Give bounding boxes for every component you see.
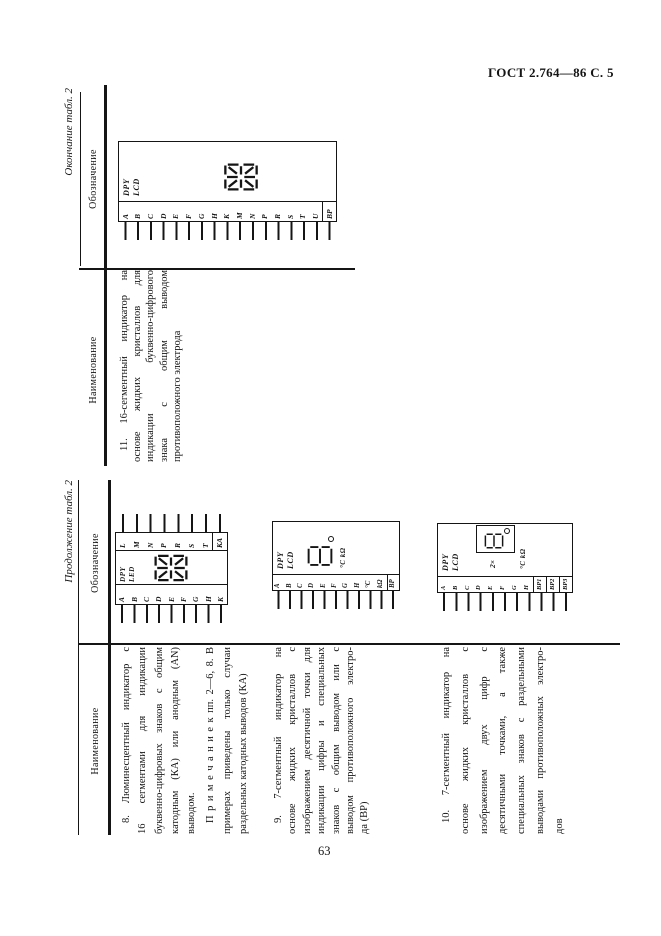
pin-strip: A B C D E F G H BP1 BP2 BP3 xyxy=(438,576,572,592)
pin-label: M xyxy=(233,202,246,221)
special-signs-label: °C kΩ xyxy=(339,548,347,568)
backplane-pin-label: BP3 xyxy=(559,577,572,592)
text-line: 9. 7-сегментный индикатор на xyxy=(272,647,286,834)
pin-label: C xyxy=(296,575,307,590)
diagram-16seg-lcd: A B C D E F G H K M N P R S T U BP DPYL xyxy=(118,141,337,222)
page-number: 63 xyxy=(318,844,331,859)
text-line: раздельных катодных выводов (КА) xyxy=(236,647,252,834)
pin-label: B xyxy=(128,585,140,604)
pin-label: G xyxy=(190,585,202,604)
pin-label: E xyxy=(318,575,329,590)
column-separator xyxy=(78,643,620,645)
backplane-pin-label: BP xyxy=(322,202,336,221)
pin-label: E xyxy=(170,202,183,221)
pin-label: A xyxy=(116,585,128,604)
pin-label: E xyxy=(165,585,177,604)
pin-strip: A B C D E F G H K xyxy=(116,584,227,604)
item-10-description: 10. 7-сегментный индикатор на основе жид… xyxy=(438,647,570,834)
header-underline xyxy=(108,480,111,835)
pin-label: A xyxy=(438,577,450,592)
pin-label: D xyxy=(474,577,486,592)
common-anode-pin-label: КА xyxy=(212,533,227,550)
pin-label: S xyxy=(284,202,297,221)
display-body: DPYLCD °C kΩ xyxy=(273,522,399,574)
table-continuation-title: Окончание табл. 2 xyxy=(63,88,75,176)
text-line: выводом противоположного электро- xyxy=(344,647,358,834)
display-body: DPYLED xyxy=(116,551,227,584)
pin-strip: L M N P R S T КА xyxy=(116,533,227,551)
text-line: знака с общим выводом xyxy=(158,270,171,462)
pin-stubs xyxy=(119,222,336,240)
pin-label: D xyxy=(307,575,318,590)
display-type-label: DPYLCD xyxy=(441,553,461,571)
pin-label: H xyxy=(208,202,221,221)
column-header-symbol: Обозначение xyxy=(88,95,99,263)
decimal-point-icon xyxy=(328,536,334,542)
pin-label: N xyxy=(246,202,259,221)
pin-label: T xyxy=(297,202,310,221)
pin-label: S xyxy=(185,533,199,550)
text-line: примерах приведены только случаи xyxy=(220,647,236,834)
text-line: выводами противоположных электро- xyxy=(532,647,551,834)
seg16-display-icon xyxy=(154,553,188,583)
pin-label: L xyxy=(116,533,130,550)
item-9-description: 9. 7-сегментный индикатор на основе жидк… xyxy=(272,647,373,834)
display-type-label: DPYLCD xyxy=(276,551,296,569)
pin-label: K xyxy=(221,202,234,221)
item-11-description: 11. 16-сегментный индикатор на основе жи… xyxy=(118,270,184,462)
pin-label: T xyxy=(199,533,213,550)
text-line: 16 сегментами для индикации xyxy=(135,647,151,834)
pin-label: G xyxy=(341,575,352,590)
pin-stubs xyxy=(116,605,227,623)
backplane-pin-label: BP xyxy=(387,575,399,590)
column-header-name: Наименование xyxy=(90,661,101,821)
header-underline xyxy=(104,85,107,466)
text-line: 11. 16-сегментный индикатор на xyxy=(118,270,131,462)
pin-label: A xyxy=(273,575,284,590)
display-type-label: DPYLCD xyxy=(122,178,142,196)
pin-label: M xyxy=(130,533,144,550)
item-8-description: 8. Люминесцентный индикатор с 16 сегмент… xyxy=(119,647,252,834)
pin-stubs xyxy=(273,591,399,609)
text-line: противоположного электрода xyxy=(171,270,184,462)
pin-label: B xyxy=(132,202,145,221)
digit-multiplier-label: 2× xyxy=(488,560,497,568)
pin-label: D xyxy=(153,585,165,604)
text-line: индикации буквенно-цифрового xyxy=(144,270,157,462)
pin-label: F xyxy=(330,575,341,590)
table-top-border xyxy=(78,480,79,835)
backplane-pin-label: BP2 xyxy=(546,577,559,592)
pin-label: B xyxy=(450,577,462,592)
pin-label: N xyxy=(144,533,158,550)
pin-label: R xyxy=(171,533,185,550)
pin-stubs xyxy=(438,593,572,611)
text-line: 8. Люминесцентный индикатор с xyxy=(119,647,135,834)
display-type-label: DPYLED xyxy=(119,566,136,582)
pin-label: P xyxy=(157,533,171,550)
pin-label: kΩ xyxy=(375,575,386,590)
text-line: катодным (КА) или анодным (AN) xyxy=(168,647,184,834)
display-body: DPYLCD 2× °C kΩ xyxy=(438,524,572,576)
column-header-symbol: Обозначение xyxy=(90,483,101,643)
pin-label: °C xyxy=(364,575,375,590)
text-line: буквенно-цифровых знаков с общим xyxy=(152,647,168,834)
pin-label: G xyxy=(195,202,208,221)
special-signs-label: °C kΩ xyxy=(519,549,527,569)
pin-label: P xyxy=(259,202,272,221)
text-line: основе жидких кристаллов с xyxy=(457,647,476,834)
pin-label: F xyxy=(178,585,190,604)
table-continuation: Продолжение табл. 2 Наименование Обознач… xyxy=(63,478,620,837)
pin-label: U xyxy=(310,202,323,221)
table-continuation-title: Продолжение табл. 2 xyxy=(63,480,75,583)
pin-label: G xyxy=(509,577,521,592)
text-line: дов xyxy=(551,647,570,834)
pin-label: H xyxy=(202,585,214,604)
seg7-display-icon xyxy=(481,533,507,549)
text-line: изображением двух цифр с xyxy=(476,647,495,834)
item-8-note: П р и м е ч а н и е к пп. 2—6, 8. В прим… xyxy=(203,647,252,834)
text-line: да (BP) xyxy=(358,647,372,834)
standard-header: ГОСТ 2.764—86 С. 5 xyxy=(488,65,628,81)
pin-label: A xyxy=(119,202,132,221)
text-line: знаков с общим выводом или с xyxy=(330,647,344,834)
text-line: изображением десятичной точки для xyxy=(301,647,315,834)
backplane-pin-label: BP1 xyxy=(533,577,546,592)
diagram-7seg-lcd: A B C D E F G H °C kΩ BP DPYLCD xyxy=(272,521,400,591)
pin-label: D xyxy=(157,202,170,221)
pin-strip: A B C D E F G H °C kΩ BP xyxy=(273,574,399,590)
pin-label: K xyxy=(215,585,227,604)
column-header-name: Наименование xyxy=(88,290,99,450)
diagram-16seg-led: A B C D E F G H K DPYLED xyxy=(115,532,228,605)
pin-label: F xyxy=(183,202,196,221)
pin-label: C xyxy=(141,585,153,604)
table-ending: Окончание табл. 2 Наименование Обозначен… xyxy=(63,85,355,470)
document-page: ГОСТ 2.764—86 С. 5 Окончание табл. 2 Наи… xyxy=(0,0,661,936)
text-line: основе жидких кристаллов с xyxy=(286,647,300,834)
pin-label: H xyxy=(521,577,533,592)
decimal-point-icon xyxy=(504,528,510,534)
pin-label: B xyxy=(284,575,295,590)
diagram-7seg-lcd-two-digit: A B C D E F G H BP1 BP2 BP3 DPYLCD xyxy=(437,523,573,593)
pin-label: C xyxy=(462,577,474,592)
text-line: индикации цифры и специальных xyxy=(315,647,329,834)
text-line: специальных знаков с раздельными xyxy=(513,647,532,834)
text-line: выводом. xyxy=(184,647,200,834)
digit-frame xyxy=(476,525,515,553)
text-line: П р и м е ч а н и е к пп. 2—6, 8. В xyxy=(203,647,219,834)
pin-label: R xyxy=(271,202,284,221)
seg16-display-icon xyxy=(223,163,259,191)
pin-label: C xyxy=(144,202,157,221)
text-line: основе жидких кристаллов для xyxy=(131,270,144,462)
pin-label: H xyxy=(353,575,364,590)
table-top-border xyxy=(80,92,81,266)
pin-label: E xyxy=(486,577,498,592)
pin-stubs xyxy=(116,514,227,532)
pin-label: F xyxy=(498,577,510,592)
seg7-display-icon xyxy=(307,545,333,567)
pin-strip: A B C D E F G H K M N P R S T U BP xyxy=(119,201,336,221)
text-line: 10. 7-сегментный индикатор на xyxy=(438,647,457,834)
text-line: десятичными точками, а также xyxy=(494,647,513,834)
